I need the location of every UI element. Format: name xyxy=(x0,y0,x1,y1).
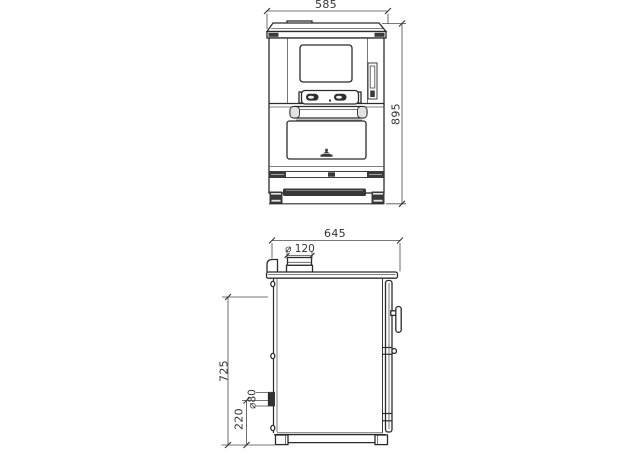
air-control-slot xyxy=(368,63,377,99)
rear-foot xyxy=(276,435,289,445)
firebox-handle-bar xyxy=(299,91,361,105)
front-height-label: 895 xyxy=(390,103,403,125)
technical-drawing-page: 585 895 xyxy=(0,0,624,460)
stove-technical-drawing: 585 895 xyxy=(0,0,624,460)
front-foot xyxy=(375,435,388,445)
side-base xyxy=(274,433,388,445)
rear-top-lip xyxy=(267,260,278,273)
front-height-dimension: 895 xyxy=(382,21,406,207)
flue-diameter-label: ⌀ 120 xyxy=(285,243,315,255)
flue-pipe xyxy=(287,258,313,273)
rear-hinge-bump-mid xyxy=(271,353,275,358)
rear-hinge-bump-bottom xyxy=(271,425,275,430)
door-edge-strip xyxy=(383,281,397,433)
rear-outlet-height-label: 220 xyxy=(233,408,246,430)
towel-rail xyxy=(290,107,367,119)
cooktop-plate xyxy=(267,23,386,38)
right-handle-knob xyxy=(334,94,347,101)
left-handle-knob xyxy=(306,94,319,101)
front-right-leg xyxy=(372,192,385,204)
firebox-window xyxy=(300,45,352,82)
rear-hinge-bump-top xyxy=(271,281,275,286)
cooktop-right-trim xyxy=(375,33,385,37)
front-left-leg xyxy=(270,192,283,204)
side-depth-label: 645 xyxy=(324,227,346,240)
front-view xyxy=(267,21,386,204)
lower-trim-band xyxy=(269,172,384,178)
cooktop-plate-side xyxy=(267,272,398,278)
flue-diameter-dimension: ⌀ 120 xyxy=(285,243,315,259)
side-view xyxy=(267,258,402,445)
oven-door-latch xyxy=(392,349,396,354)
cooktop-left-trim xyxy=(269,33,279,37)
drawer-recess xyxy=(283,189,366,197)
rear-outlet-stub xyxy=(268,392,274,406)
air-control-knob xyxy=(370,91,375,98)
left-height-label: 725 xyxy=(218,360,231,382)
front-width-label: 585 xyxy=(315,0,337,11)
